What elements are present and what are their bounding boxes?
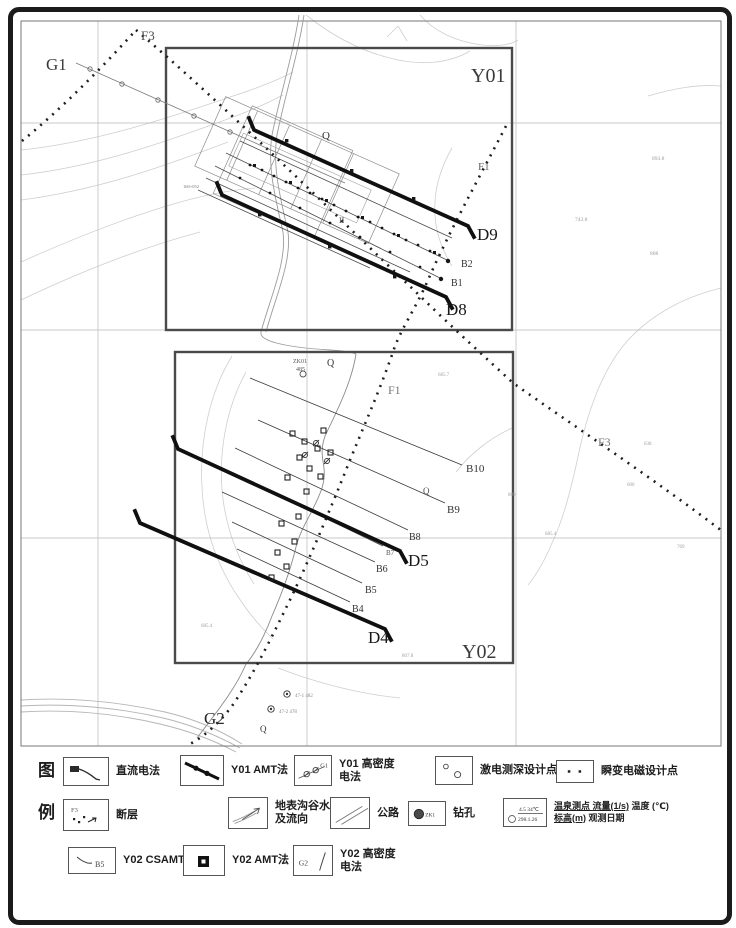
map-label-q: Q bbox=[423, 486, 430, 496]
map-label-b9: B9 bbox=[447, 504, 460, 516]
map-label-d9: D9 bbox=[477, 225, 498, 244]
line-d9 bbox=[249, 118, 474, 237]
map-label-f3: F3 bbox=[598, 435, 611, 449]
map-label-y01: Y01 bbox=[471, 65, 505, 87]
map-label-ii: II bbox=[339, 216, 345, 225]
map-label-g2: G2 bbox=[204, 709, 225, 728]
map-label-47-2-478: 47-2 478 bbox=[279, 710, 297, 715]
map-label-d8: D8 bbox=[446, 300, 467, 319]
map-label-q: Q bbox=[327, 358, 335, 369]
map-label-f1: F1 bbox=[478, 161, 490, 173]
point-b1 bbox=[439, 277, 443, 281]
y01-survey-grid bbox=[195, 97, 399, 244]
fault-f3-main bbox=[136, 30, 722, 531]
spring-points bbox=[268, 691, 290, 712]
map-label-685-7: 685.7 bbox=[438, 373, 450, 378]
map-label-b10: B10 bbox=[466, 463, 485, 475]
map-label-b2: B2 bbox=[461, 259, 473, 270]
map-label-160-052: 160+052 bbox=[183, 184, 199, 189]
map-label-g1: G1 bbox=[46, 55, 67, 74]
map-label-q: Q bbox=[322, 130, 330, 142]
map-label-q: Q bbox=[260, 724, 267, 734]
map-label-y02: Y02 bbox=[462, 641, 496, 663]
map-label-600: 600 bbox=[627, 483, 635, 488]
map-label-b4: B4 bbox=[352, 604, 364, 615]
map-label-b8: B8 bbox=[409, 532, 421, 543]
line-d5 bbox=[173, 437, 406, 562]
map-label-d4: D4 bbox=[368, 628, 389, 647]
map-label-685-4: 685.4 bbox=[545, 532, 557, 537]
map-label-f3: F3 bbox=[141, 28, 155, 43]
fault-f3-west bbox=[22, 30, 136, 141]
fault-f1 bbox=[190, 126, 506, 744]
map-label-638: 638 bbox=[644, 442, 652, 447]
map-label-b6: B6 bbox=[376, 564, 388, 575]
map-label-d5: D5 bbox=[408, 551, 429, 570]
map-label-809: 809 bbox=[508, 493, 516, 498]
map-label-685-4: 685.4 bbox=[201, 624, 213, 629]
map-label-b7: B7 bbox=[386, 549, 395, 557]
point-b2 bbox=[446, 259, 450, 263]
map-label-743-8: 743.8 bbox=[575, 217, 588, 223]
map-label-zk01: ZK01 bbox=[293, 359, 307, 365]
map-label-f1: F1 bbox=[388, 383, 401, 397]
region-box-y02 bbox=[175, 352, 513, 663]
map-label-808: 808 bbox=[650, 251, 659, 257]
map-label-b5: B5 bbox=[365, 585, 377, 596]
map-label-769: 769 bbox=[677, 545, 685, 550]
map-label-893-8: 893.8 bbox=[652, 156, 665, 162]
map-label-47-1-482: 47-1 482 bbox=[295, 694, 313, 699]
map-label-b1: B1 bbox=[451, 278, 463, 289]
scanned-survey-map-page: G1F3Y01QF1D9B2B1D8II160+052893.8743.8808… bbox=[0, 0, 736, 928]
map-label-807-8: 807.8 bbox=[402, 654, 414, 659]
map-label-485: 485 bbox=[296, 367, 305, 373]
survey-map-canvas: G1F3Y01QF1D9B2B1D8II160+052893.8743.8808… bbox=[0, 0, 736, 928]
